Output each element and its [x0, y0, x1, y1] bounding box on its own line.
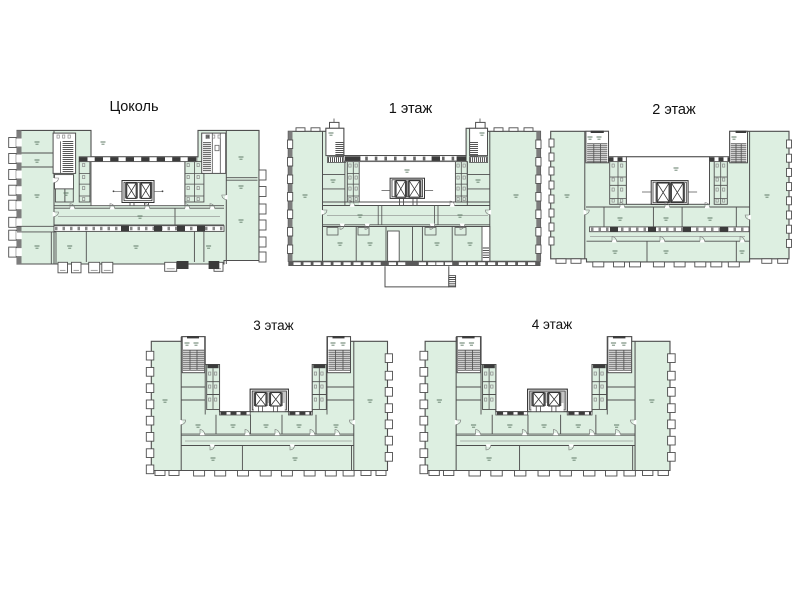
svg-text:2 этаж: 2 этаж	[652, 102, 696, 118]
svg-text:3 этаж: 3 этаж	[253, 318, 293, 333]
svg-text:Цоколь: Цоколь	[109, 99, 158, 115]
svg-text:1 этаж: 1 этаж	[389, 101, 433, 117]
svg-text:4 этаж: 4 этаж	[532, 317, 572, 332]
